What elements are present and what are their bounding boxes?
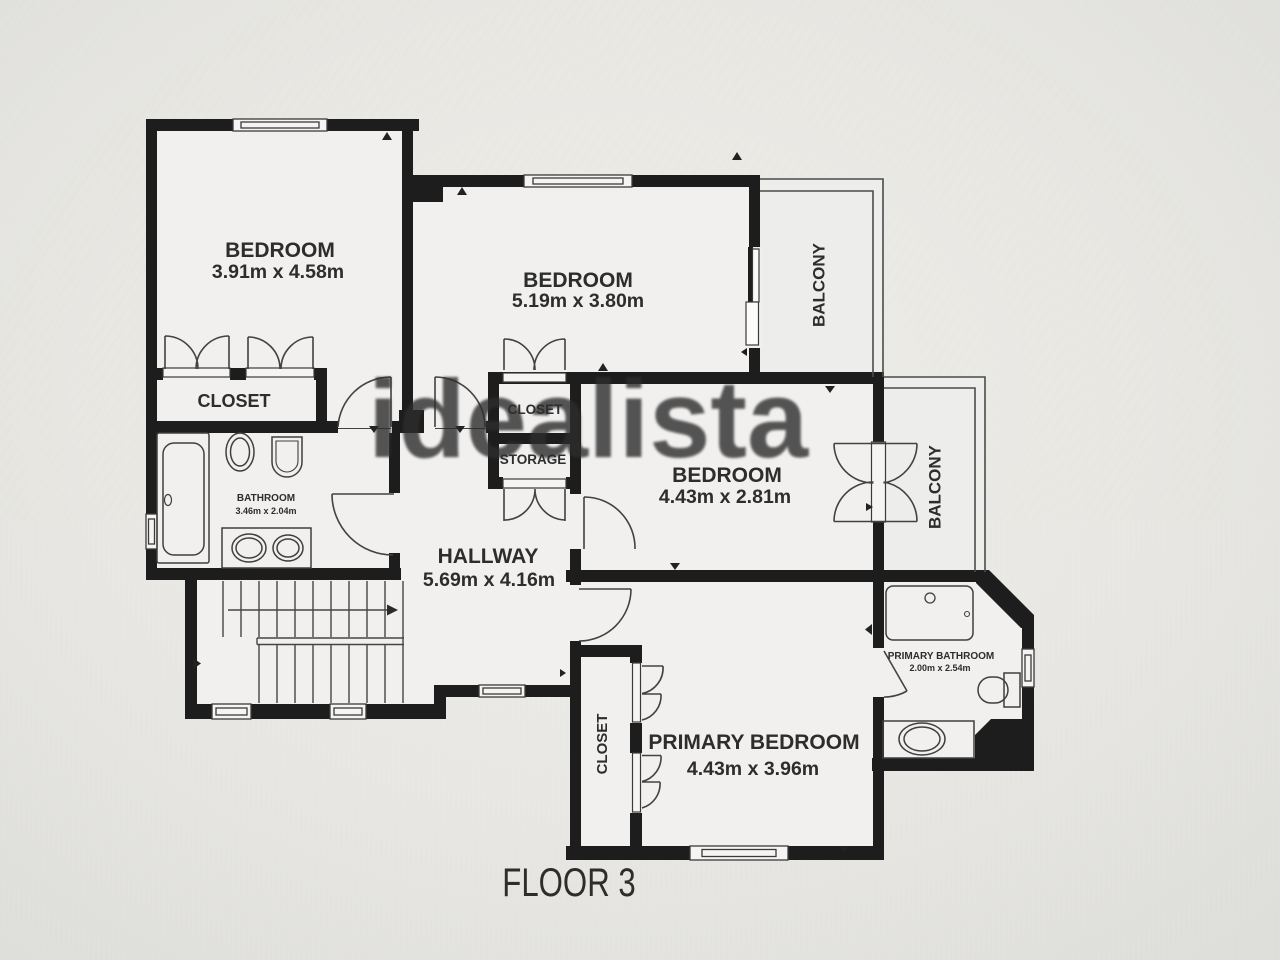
svg-text:BEDROOM: BEDROOM xyxy=(225,239,335,262)
svg-text:CLOSET: CLOSET xyxy=(594,714,611,775)
svg-text:3.91m x 4.58m: 3.91m x 4.58m xyxy=(212,261,344,283)
svg-text:CLOSET: CLOSET xyxy=(197,391,270,411)
svg-text:PRIMARY BATHROOM: PRIMARY BATHROOM xyxy=(888,651,994,662)
svg-text:BALCONY: BALCONY xyxy=(925,444,944,529)
svg-text:4.43m x 2.81m: 4.43m x 2.81m xyxy=(659,486,791,508)
svg-text:idealista: idealista xyxy=(368,358,809,481)
svg-text:PRIMARY BEDROOM: PRIMARY BEDROOM xyxy=(648,731,859,754)
svg-text:BALCONY: BALCONY xyxy=(809,242,828,327)
svg-text:5.19m x 3.80m: 5.19m x 3.80m xyxy=(512,290,644,312)
svg-text:BEDROOM: BEDROOM xyxy=(672,464,782,487)
svg-text:BATHROOM: BATHROOM xyxy=(237,493,295,504)
svg-text:CLOSET: CLOSET xyxy=(508,402,564,417)
svg-text:STORAGE: STORAGE xyxy=(500,452,567,467)
svg-text:HALLWAY: HALLWAY xyxy=(438,545,539,568)
svg-text:BEDROOM: BEDROOM xyxy=(523,269,633,292)
svg-text:3.46m x 2.04m: 3.46m x 2.04m xyxy=(235,506,296,516)
svg-text:4.43m x 3.96m: 4.43m x 3.96m xyxy=(687,758,819,780)
svg-text:FLOOR 3: FLOOR 3 xyxy=(502,860,635,905)
svg-text:5.69m x 4.16m: 5.69m x 4.16m xyxy=(423,569,555,591)
svg-text:2.00m x 2.54m: 2.00m x 2.54m xyxy=(909,663,970,673)
